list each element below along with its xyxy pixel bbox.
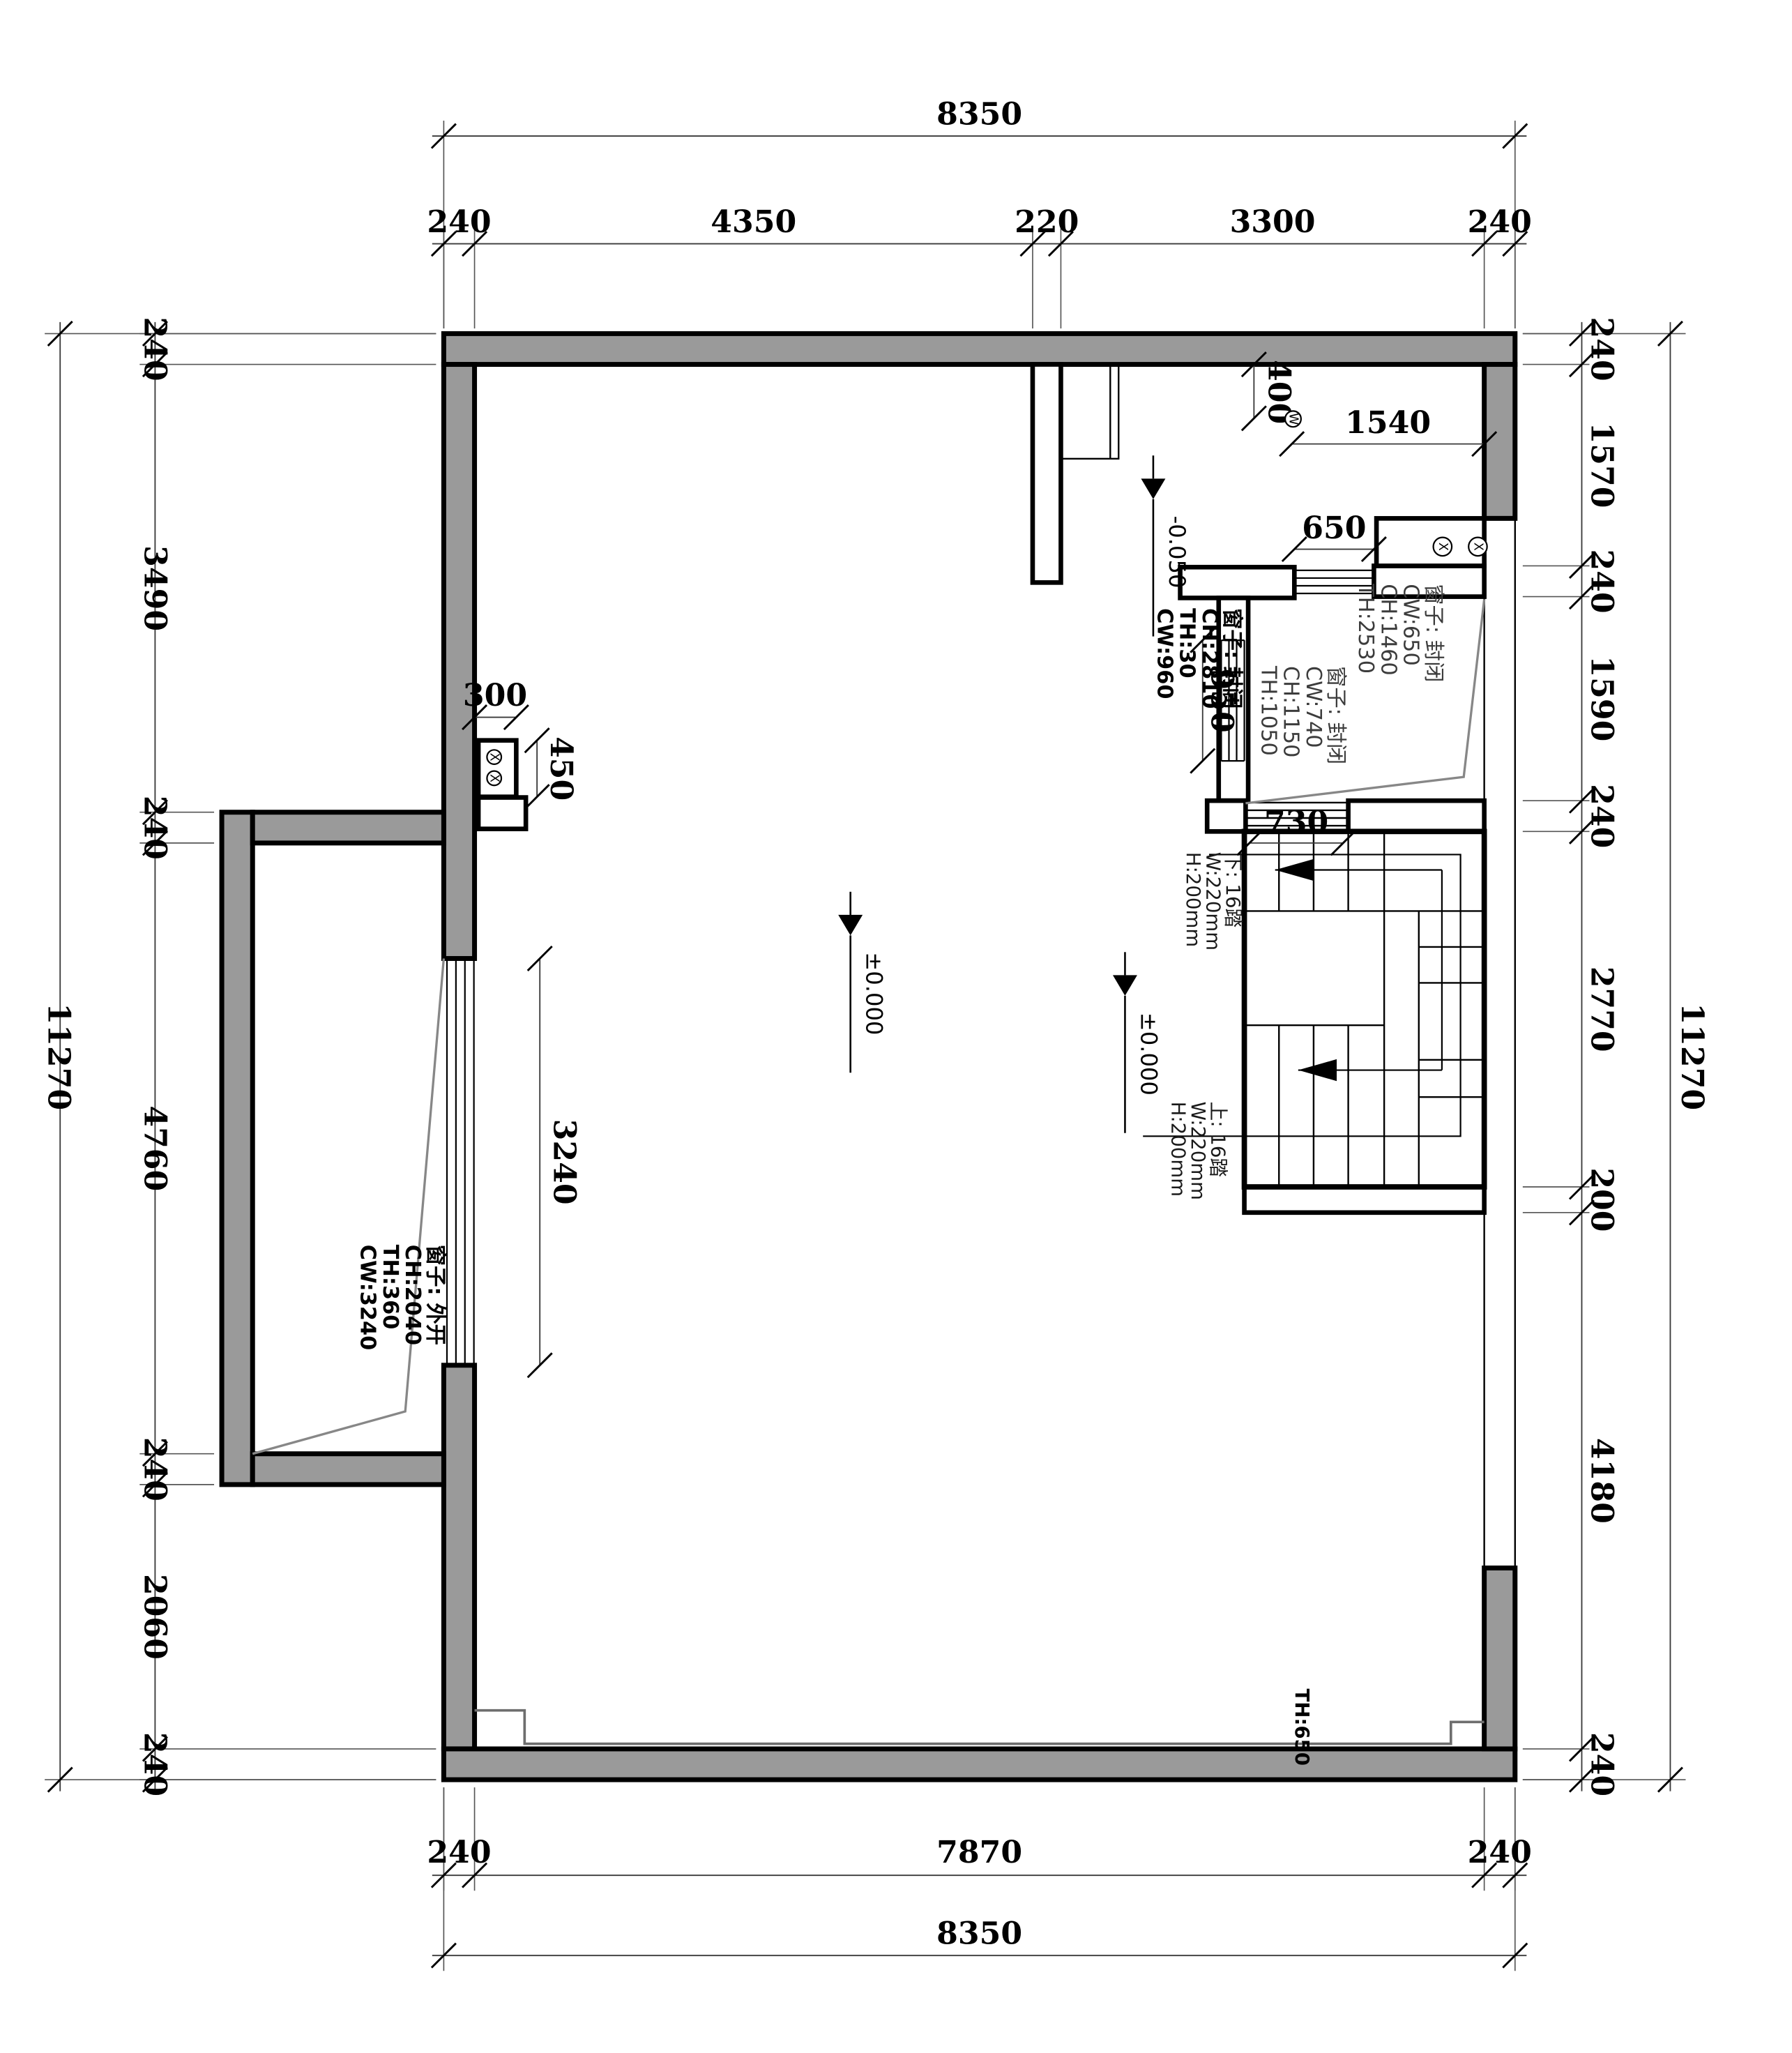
dim-label: 7870 [936,1835,1022,1870]
dim-label: 4180 [1584,1438,1619,1524]
wall-right-lower [1485,1568,1515,1748]
interior-dim-label: 3240 [547,1119,582,1205]
stair-annotation-line: W:220mm [1187,1102,1210,1200]
level-triangle [838,915,863,935]
stair-bottom-wall [1245,1187,1485,1213]
dim-label: 1590 [1584,656,1619,741]
dim-label: 4760 [137,1105,173,1191]
interior-dim-label: 300 [463,678,527,713]
dim-label: 240 [137,796,173,860]
dim-label: 240 [1584,784,1619,848]
dim-total-label: 8350 [936,96,1022,132]
window-annotation-line: TH:360 [378,1245,402,1330]
level-value: ±0.000 [861,952,888,1035]
dim-total-label: 8350 [936,1916,1022,1952]
right-opening-edge [1485,518,1515,1568]
window-annotation-line: CW:960 [1152,608,1176,699]
dim-label: 240 [1468,1835,1532,1870]
dim-label: 240 [1584,317,1619,381]
dim-label: 240 [137,317,173,381]
wall-left-lower [443,1365,474,1749]
dim-label: 2770 [1584,967,1619,1052]
threshold-platform-line [475,1711,1485,1744]
dim-label: 220 [1015,204,1079,240]
dim-label: 4350 [711,204,796,240]
symbol-letter: X [1471,543,1485,551]
dim-label: 200 [1584,1167,1619,1232]
dim-label: 2060 [137,1574,173,1660]
window-annotation-line: 窗子: 封闭 [1323,666,1348,764]
window-annotation-line: TH:30 [1175,608,1199,679]
interior-dim-label: 650 [1302,510,1366,546]
window-annotation-line: CH:2810 [1197,608,1222,709]
stair-top-wall [1349,801,1485,831]
symbol-letter: X [487,753,501,762]
dim-label: 3300 [1230,204,1316,240]
interior-dim-label: 450 [543,736,579,801]
window-annotation-line: 窗子: 封闭 [1220,608,1245,709]
window-annotation-line: CH:1460 [1376,584,1400,676]
thin-partition [1110,365,1118,459]
interior-dim-label: 1540 [1345,405,1431,441]
stair-annotation-line: H:200mm [1182,852,1205,947]
dim-total-label: 11270 [1674,1003,1710,1110]
dim-label: 240 [1584,1732,1619,1796]
level-value: ±0.000 [1135,1013,1162,1096]
equipment-box-right [1376,518,1485,566]
wall-left-upper [443,365,474,959]
wall-bottom [443,1749,1514,1780]
dim-total-label: 11270 [41,1003,77,1110]
bay-wall-top [252,812,443,843]
level-value: -0.050 [1164,516,1190,589]
bay-wall-bottom [252,1454,443,1485]
partition-bar [1180,567,1295,598]
stair-door-pier [1207,801,1245,831]
stair-annotation-line: 下: 16踏 [1222,852,1245,927]
stair-annotation-line: H:200mm [1167,1102,1190,1197]
dim-label: 240 [427,204,491,240]
dim-label: 240 [1584,549,1619,613]
window-annotation-line: CW:740 [1301,666,1326,748]
level-triangle [1113,975,1137,995]
symbol-letter: X [1436,543,1450,551]
shelf-box [478,798,526,829]
dim-label: 1570 [1584,423,1619,508]
floor-plan-canvas: 2404350220330024083502407870240835024034… [0,0,1792,2053]
window-annotation-line: TH:1050 [1256,665,1280,756]
wall-top [443,333,1514,364]
dim-label: 240 [427,1835,491,1870]
dim-label: 240 [137,1437,173,1501]
window-annotation-line: 窗子: 外开 [423,1245,448,1345]
symbol-letter: W [1286,413,1300,425]
window-swing-line [252,958,443,1453]
wall-right-upper [1485,365,1515,519]
interior-dim-label: 730 [1264,805,1328,840]
window-annotation-line: TH:2530 [1353,583,1378,674]
level-triangle [1141,478,1165,499]
threshold-label: TH:650 [1291,1688,1314,1766]
dim-label: 240 [1468,204,1532,240]
stair-annotation-line: 上: 16踏 [1207,1102,1230,1177]
dim-label: 240 [137,1732,173,1796]
dim-label: 3490 [137,545,173,631]
window-annotation-line: CW:650 [1399,584,1423,666]
window-annotation-line: CW:3240 [356,1245,380,1350]
stair-annotation-line: W:220mm [1201,852,1224,950]
partition-stub [1033,365,1061,583]
floor-plan-drawing: 2404350220330024083502407870240835024034… [0,0,1792,2053]
window-annotation-line: CH:1150 [1279,666,1303,758]
bay-wall-left [222,812,252,1485]
window-annotation-line: 窗子: 封闭 [1421,584,1445,682]
stair-well [1245,831,1485,1187]
symbol-letter: X [487,774,501,782]
outlet-box [478,741,516,797]
window-annotation-line: CH:2040 [400,1245,425,1345]
